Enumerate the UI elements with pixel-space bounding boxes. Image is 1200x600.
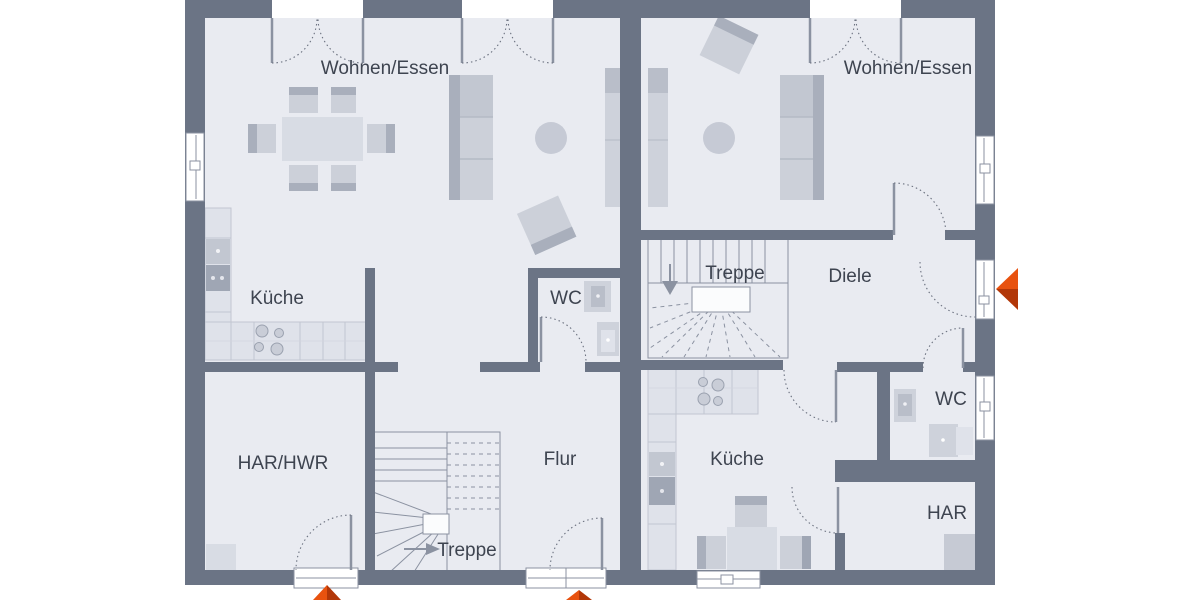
entrance-door-right bbox=[976, 260, 994, 319]
patio-door-right bbox=[810, 0, 901, 18]
left-unit-coffee-table bbox=[535, 122, 567, 154]
label-right-treppe: Treppe bbox=[705, 263, 765, 284]
entrance-arrow-bottom-center bbox=[566, 590, 592, 600]
label-left-kueche: Küche bbox=[250, 288, 304, 309]
label-right-diele: Diele bbox=[828, 266, 871, 287]
right-unit-storage-block bbox=[944, 534, 976, 570]
right-unit-sideboard bbox=[648, 68, 668, 207]
floor-plan-canvas: Wohnen/Essen Wohnen/Essen Küche WC HAR/H… bbox=[0, 0, 1200, 600]
label-right-har: HAR bbox=[927, 503, 967, 524]
entrance-arrow-right bbox=[996, 268, 1018, 310]
floor-plan-svg: Wohnen/Essen Wohnen/Essen Küche WC HAR/H… bbox=[0, 0, 1200, 600]
left-unit-sofa bbox=[449, 75, 493, 200]
label-right-kueche: Küche bbox=[710, 449, 764, 470]
label-right-wohnen-essen: Wohnen/Essen bbox=[844, 58, 973, 79]
left-unit-storage-block bbox=[206, 544, 236, 570]
label-left-har-hwr: HAR/HWR bbox=[238, 453, 329, 474]
patio-door-left-1 bbox=[272, 0, 363, 18]
right-unit-coffee-table bbox=[703, 122, 735, 154]
label-left-treppe: Treppe bbox=[437, 540, 497, 561]
label-right-wc: WC bbox=[935, 389, 967, 410]
patio-door-left-2 bbox=[462, 0, 553, 18]
label-left-wohnen-essen: Wohnen/Essen bbox=[321, 58, 450, 79]
right-unit-sofa bbox=[780, 75, 824, 200]
label-left-wc: WC bbox=[550, 288, 582, 309]
label-left-flur: Flur bbox=[544, 449, 577, 470]
